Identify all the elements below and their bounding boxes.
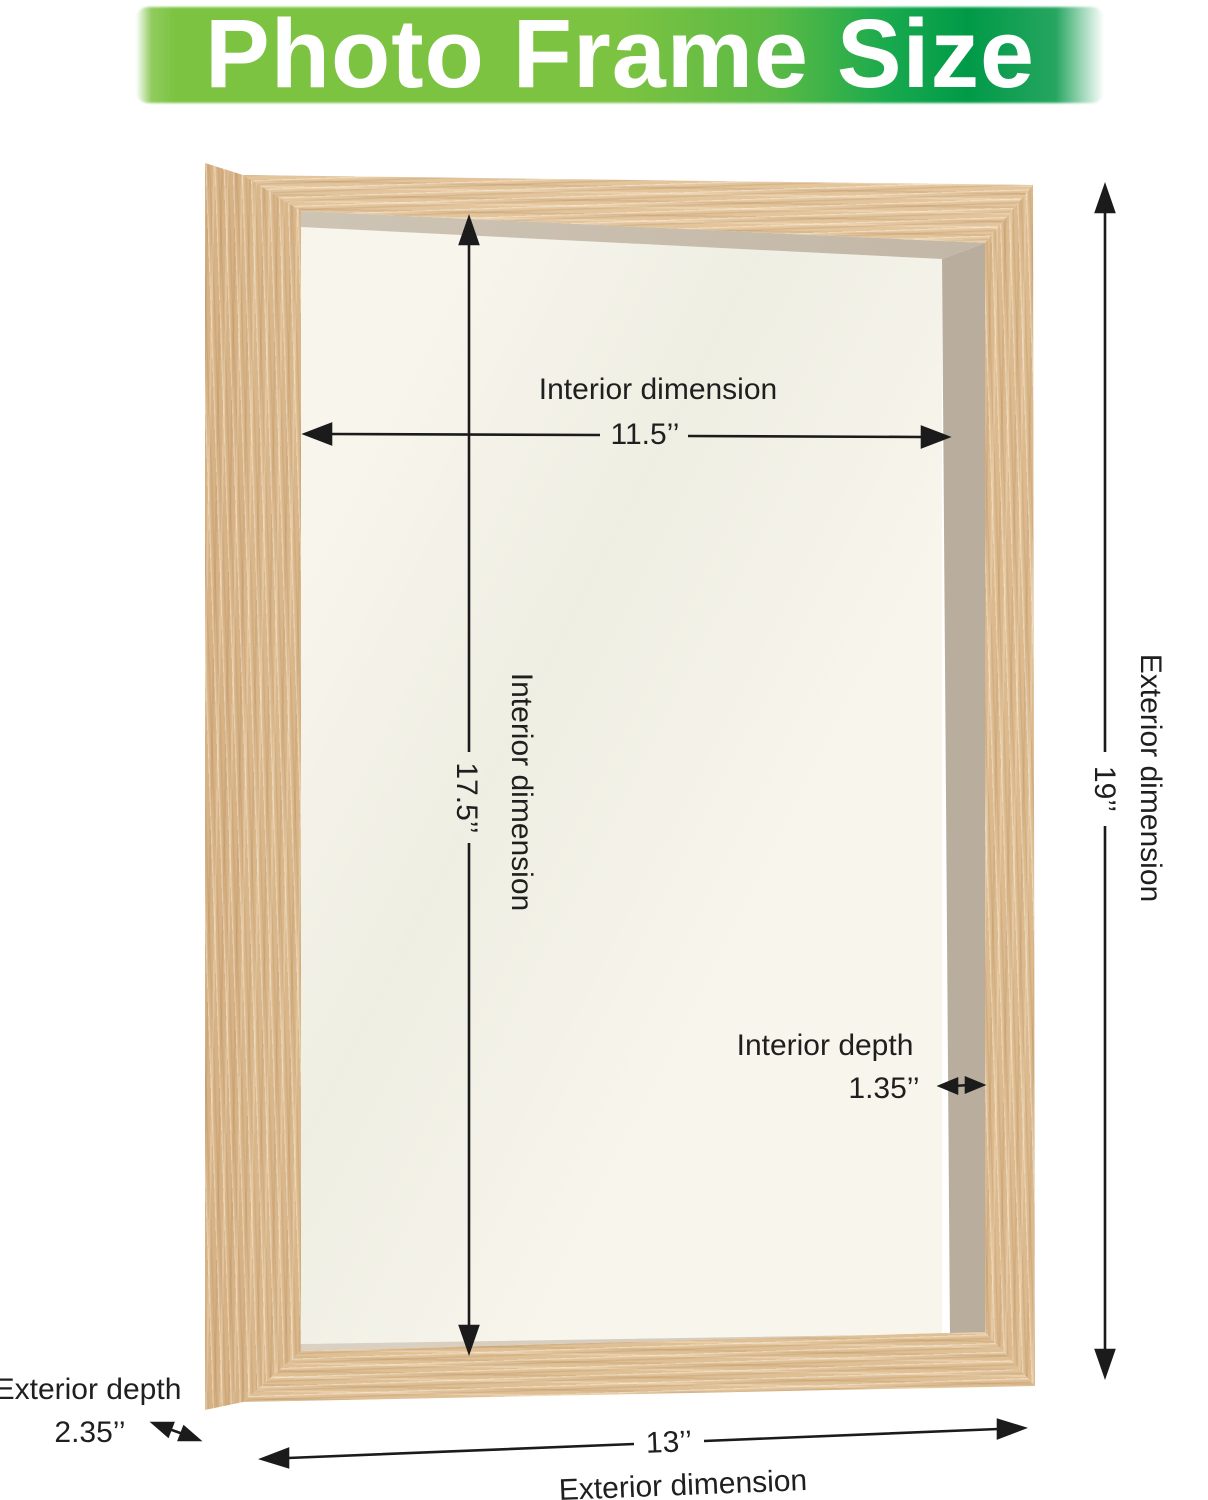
exterior-height-value: 19’’ [1087, 766, 1121, 812]
exterior-depth-arrow [153, 1423, 199, 1440]
exterior-width-value: 13’’ [645, 1425, 692, 1461]
interior-depth-value: 1.35’’ [848, 1072, 919, 1106]
exterior-width-arrow [262, 1420, 1024, 1467]
interior-width-value: 11.5’’ [611, 418, 680, 452]
exterior-width-label: Exterior dimension [558, 1464, 808, 1500]
interior-height-label: Interior dimension [504, 673, 538, 911]
interior-depth-label: Interior depth [737, 1029, 914, 1063]
page-title: Photo Frame Size [140, 4, 1100, 104]
exterior-height-label: Exterior dimension [1133, 654, 1167, 902]
photo-frame-size-diagram: Photo Frame Size [0, 0, 1208, 1500]
exterior-depth-label: Exterior depth [0, 1373, 181, 1407]
interior-height-value: 17.5’’ [449, 762, 483, 833]
interior-width-label: Interior dimension [539, 373, 777, 407]
exterior-depth-value: 2.35’’ [54, 1416, 125, 1450]
